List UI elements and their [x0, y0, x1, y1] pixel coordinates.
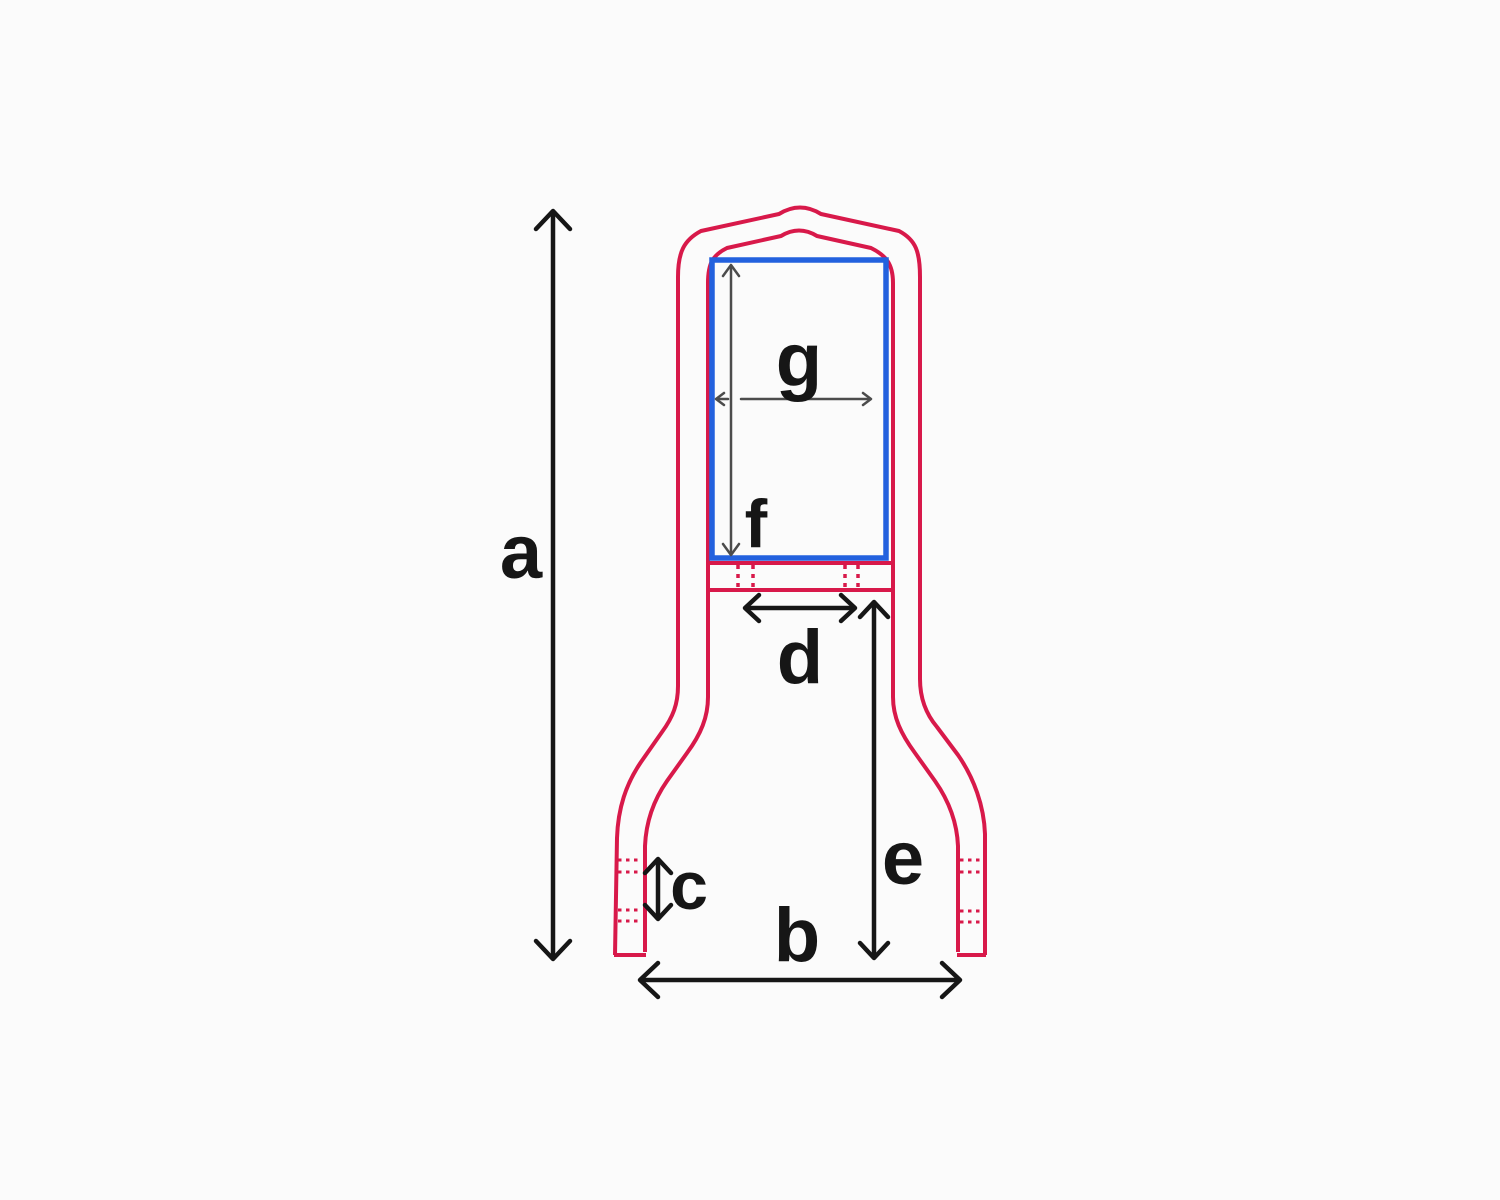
- backrest-pad-rect: [712, 260, 886, 558]
- dimension-b-label: b: [774, 893, 820, 978]
- diagram-canvas: a b c d e f g: [0, 0, 1500, 1200]
- dimension-f-arrow: [723, 265, 739, 555]
- dimension-c-label: c: [670, 848, 708, 924]
- dimension-a-label: a: [500, 510, 543, 595]
- dimension-f-label: f: [745, 486, 768, 562]
- dimension-c-arrow: [645, 859, 671, 919]
- pad-bolt-hidden-lines: [738, 565, 858, 588]
- dimension-e-arrow: [860, 602, 888, 958]
- sissybar-dimension-diagram: a b c d e f g: [0, 0, 1500, 1200]
- dimension-d-label: d: [777, 615, 823, 700]
- dimension-g-label: g: [776, 318, 822, 403]
- dimension-e-label: e: [882, 816, 924, 901]
